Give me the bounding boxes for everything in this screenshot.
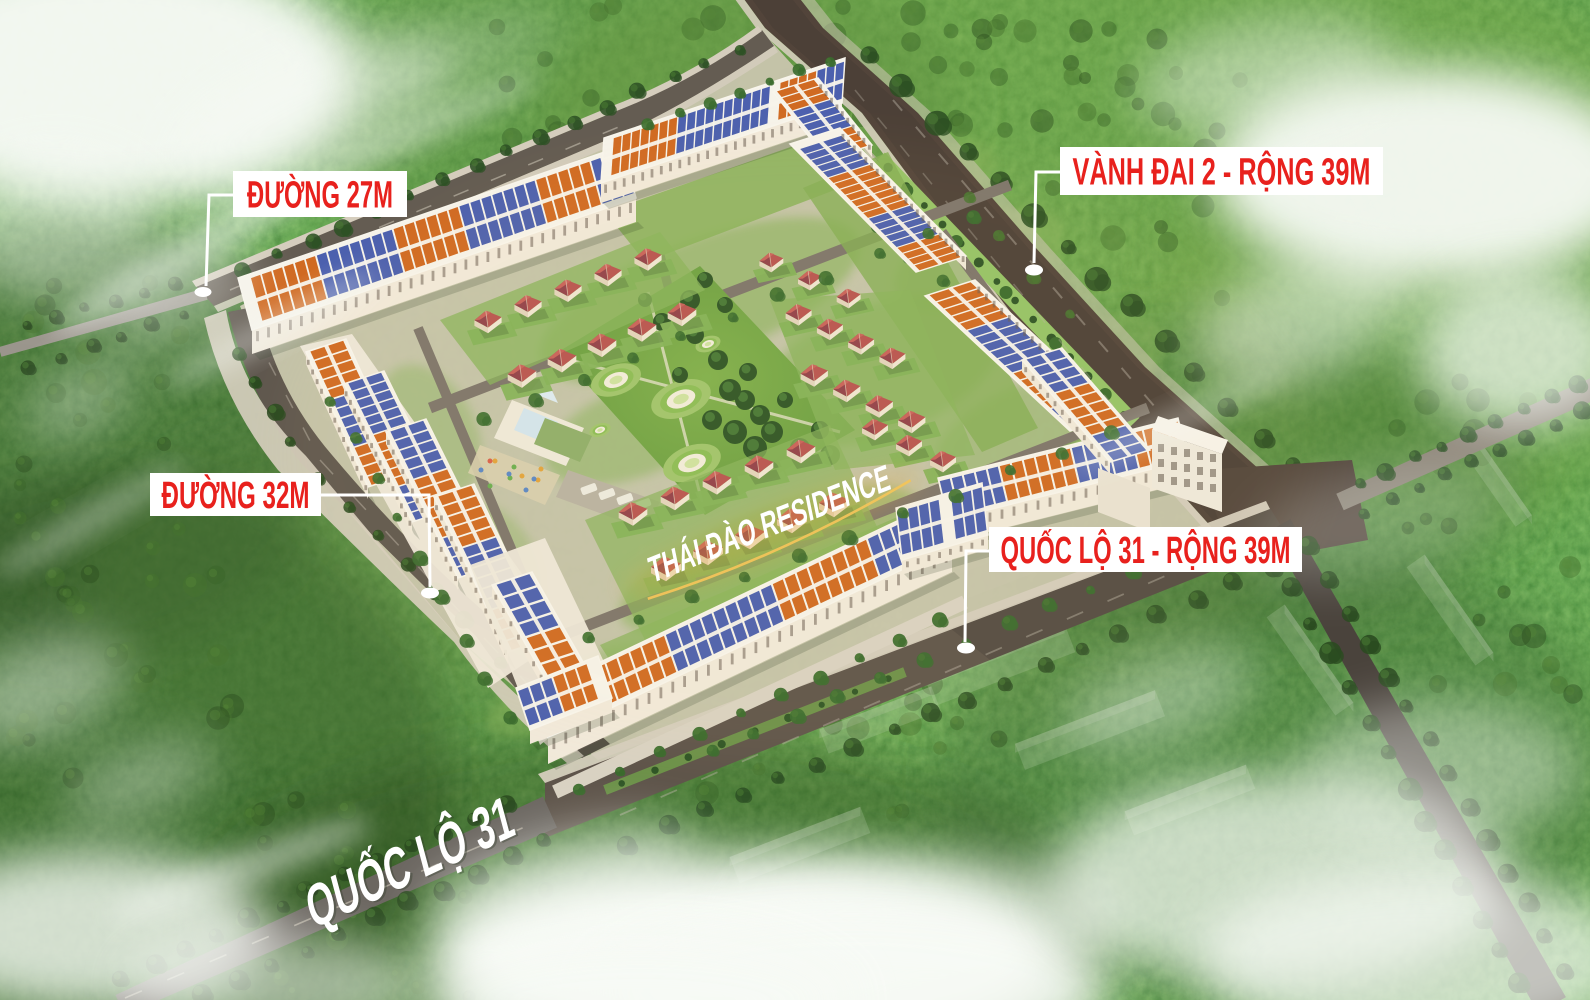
svg-text:VÀNH ĐAI 2 - RỘNG 39M: VÀNH ĐAI 2 - RỘNG 39M <box>1073 149 1371 194</box>
svg-text:QUỐC LỘ 31 - RỘNG 39M: QUỐC LỘ 31 - RỘNG 39M <box>1001 527 1291 572</box>
svg-text:ĐƯỜNG 27M: ĐƯỜNG 27M <box>247 173 393 217</box>
svg-text:ĐƯỜNG 32M: ĐƯỜNG 32M <box>162 473 310 517</box>
